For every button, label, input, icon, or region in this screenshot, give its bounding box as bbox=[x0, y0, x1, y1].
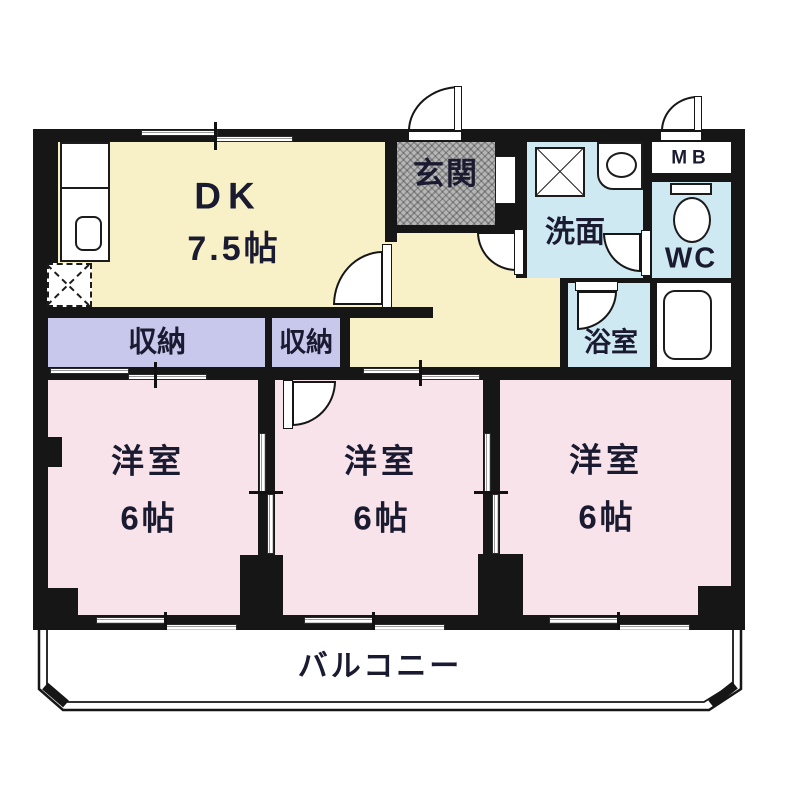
bathroom-label: 浴室 bbox=[584, 330, 638, 357]
bedroom3-size-label: 6帖 bbox=[578, 501, 635, 534]
bedroom1-label: 洋室 bbox=[111, 445, 185, 478]
bedroom1-size-label: 6帖 bbox=[120, 502, 177, 535]
dk-label: DK bbox=[194, 178, 261, 215]
dk-size-label: 7.5帖 bbox=[187, 232, 280, 266]
bedroom2-size-label: 6帖 bbox=[353, 502, 410, 535]
closet1-label: 収納 bbox=[128, 329, 186, 358]
genkan-label: 玄関 bbox=[413, 159, 479, 190]
wc-label: WC bbox=[665, 245, 717, 274]
closet2-label: 収納 bbox=[279, 330, 333, 357]
balcony-label: バルコニー bbox=[298, 652, 462, 682]
washroom-label: 洗面 bbox=[545, 218, 605, 248]
bedroom2-label: 洋室 bbox=[344, 445, 418, 478]
bedroom3-label: 洋室 bbox=[569, 444, 643, 477]
floor-plan: DK 7.5帖 玄関 収納 収納 洗面 MB WC 浴室 洋室 6帖 洋室 6帖… bbox=[0, 0, 800, 800]
meter-box-label: MB bbox=[671, 149, 711, 168]
